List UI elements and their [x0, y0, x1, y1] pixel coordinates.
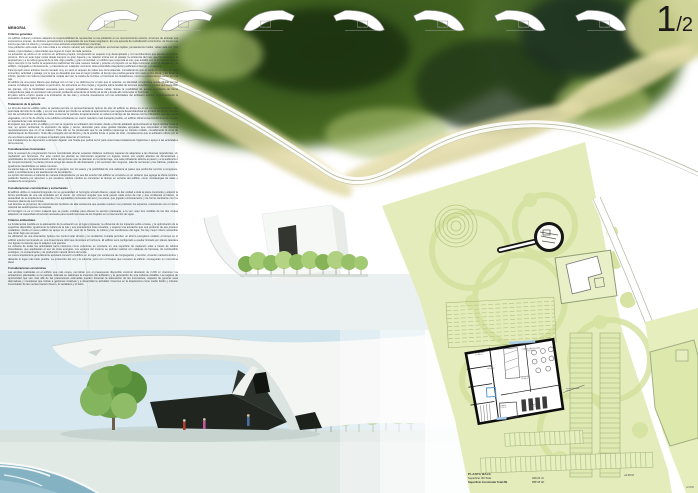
concept-sketch-strip — [0, 0, 698, 493]
competition-board: Instalaciones 12.80 m² Hall 44.20 m² Caf… — [0, 0, 698, 493]
concept-sketch-2 — [158, 7, 216, 35]
page-number-current: 1 — [656, 0, 676, 39]
concept-sketch-3 — [240, 7, 298, 35]
concept-sketch-7 — [572, 7, 630, 35]
concept-sketch-6 — [491, 7, 549, 35]
page-number-total: /2 — [676, 14, 693, 36]
concept-sketch-1 — [84, 7, 142, 35]
page-number: 1/2 — [656, 0, 693, 40]
concept-sketch-4 — [330, 7, 388, 35]
concept-sketch-5 — [410, 7, 468, 35]
